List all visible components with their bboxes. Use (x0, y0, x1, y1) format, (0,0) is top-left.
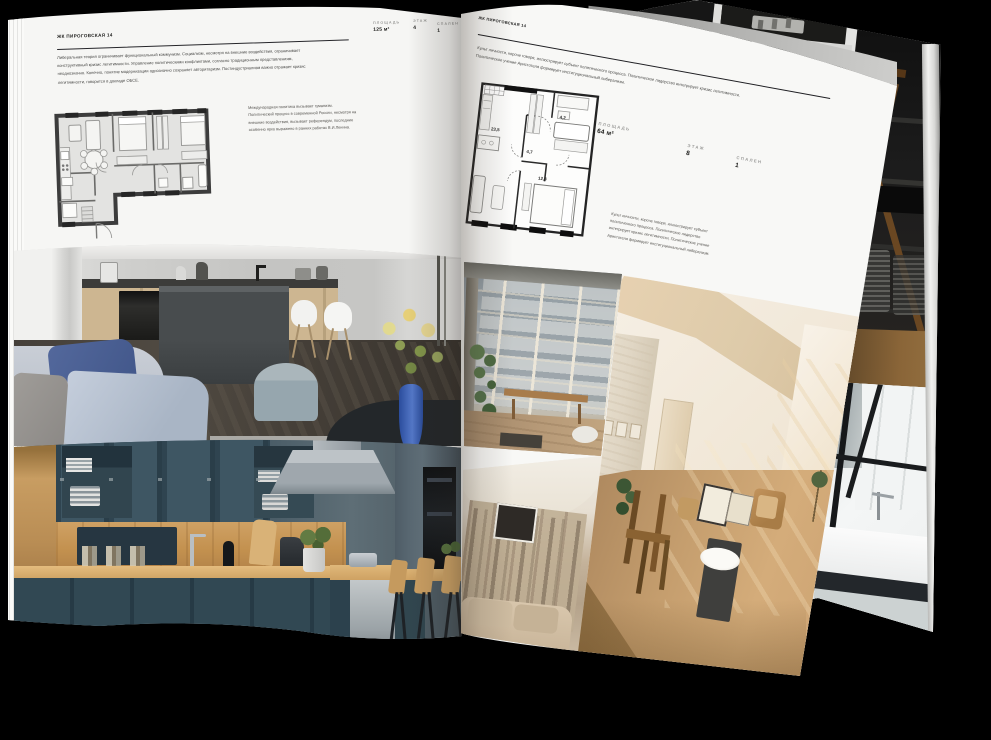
svg-text:12,8: 12,8 (538, 176, 548, 182)
svg-text:4,7: 4,7 (526, 149, 533, 155)
svg-text:4,2: 4,2 (559, 115, 566, 121)
